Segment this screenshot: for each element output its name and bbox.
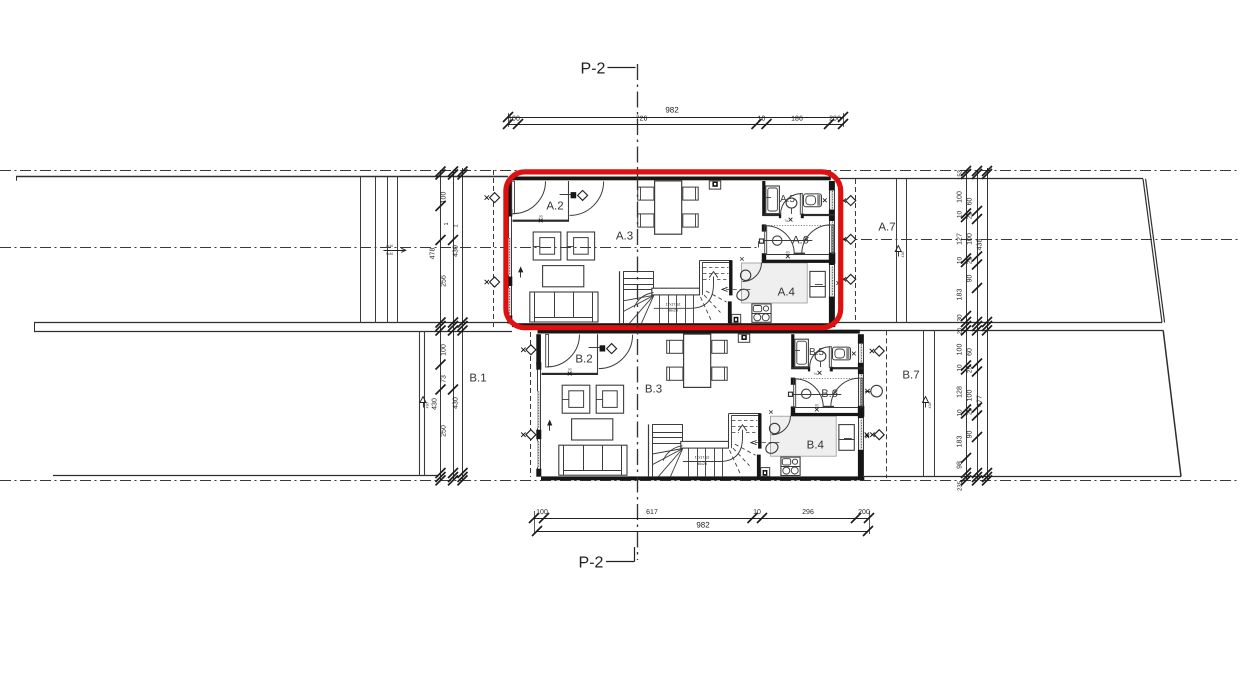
svg-text:B.5: B.5 [809, 347, 824, 358]
svg-text:5x30: 5x30 [386, 252, 393, 256]
svg-text:982: 982 [665, 106, 679, 115]
svg-text:430: 430 [432, 398, 439, 410]
svg-text:70: 70 [813, 372, 817, 376]
svg-text:A.4: A.4 [778, 286, 796, 298]
svg-text:17x17.52: 17x17.52 [666, 302, 681, 306]
svg-text:A.2: A.2 [546, 201, 563, 213]
svg-text:100: 100 [957, 344, 964, 356]
svg-text:100: 100 [441, 344, 448, 356]
svg-text:B.4: B.4 [807, 440, 825, 452]
svg-text:90: 90 [568, 368, 572, 372]
svg-text:100: 100 [967, 233, 974, 245]
svg-text:73: 73 [441, 375, 448, 383]
svg-text:B.1: B.1 [469, 373, 486, 385]
svg-text:70: 70 [784, 219, 788, 223]
svg-text:100: 100 [441, 192, 448, 204]
svg-text:10: 10 [758, 116, 766, 123]
svg-text:617: 617 [646, 509, 658, 516]
svg-text:477: 477 [977, 395, 984, 407]
svg-text:90: 90 [967, 275, 974, 283]
svg-text:25: 25 [967, 212, 974, 220]
svg-text:10: 10 [957, 211, 964, 219]
svg-text:4x16: 4x16 [386, 244, 393, 248]
svg-text:128: 128 [957, 386, 964, 398]
svg-text:183: 183 [957, 436, 964, 448]
svg-text:127: 127 [957, 233, 964, 245]
svg-text:478: 478 [430, 248, 437, 260]
svg-text:430: 430 [453, 397, 460, 409]
svg-text:153: 153 [957, 169, 964, 180]
svg-text:30: 30 [957, 314, 964, 322]
svg-text:98: 98 [957, 461, 964, 469]
svg-text:25: 25 [967, 408, 974, 416]
svg-text:A.6: A.6 [792, 235, 809, 247]
svg-text:20: 20 [957, 327, 964, 334]
svg-text:90: 90 [967, 431, 974, 439]
svg-text:438: 438 [977, 239, 984, 251]
svg-text:A.3: A.3 [616, 231, 633, 243]
svg-text:438: 438 [901, 252, 905, 258]
svg-text:200: 200 [858, 509, 870, 516]
svg-text:17x17.52: 17x17.52 [695, 456, 710, 460]
svg-text:256: 256 [441, 275, 448, 287]
svg-text:60: 60 [967, 348, 974, 356]
svg-text:100: 100 [957, 191, 964, 203]
svg-text:25: 25 [967, 257, 974, 265]
svg-text:235: 235 [957, 480, 964, 491]
svg-text:982: 982 [696, 521, 710, 530]
svg-text:B.7: B.7 [902, 370, 919, 382]
svg-text:10: 10 [957, 409, 964, 417]
svg-text:296: 296 [802, 509, 814, 516]
svg-text:P-2: P-2 [579, 555, 604, 572]
svg-text:B.3: B.3 [645, 384, 662, 396]
svg-text:100: 100 [508, 116, 520, 123]
svg-text:80: 80 [786, 250, 790, 254]
svg-text:430: 430 [453, 245, 460, 257]
svg-text:80: 80 [815, 404, 819, 408]
svg-text:250: 250 [441, 425, 448, 437]
svg-text:100: 100 [967, 390, 974, 402]
svg-text:726: 726 [636, 116, 648, 123]
svg-text:186: 186 [791, 116, 803, 123]
svg-text:96x28: 96x28 [697, 462, 707, 466]
svg-text:10: 10 [753, 509, 761, 516]
svg-text:438: 438 [928, 403, 932, 409]
svg-text:A.5: A.5 [780, 194, 795, 205]
svg-text:10: 10 [957, 364, 964, 372]
svg-text:96x28: 96x28 [668, 309, 678, 313]
svg-text:P-2: P-2 [581, 61, 606, 78]
svg-text:183: 183 [957, 289, 964, 301]
svg-text:10: 10 [957, 257, 964, 265]
svg-text:90: 90 [539, 214, 543, 218]
svg-text:60: 60 [967, 198, 974, 206]
svg-text:100: 100 [536, 509, 548, 516]
svg-text:430: 430 [426, 403, 430, 409]
svg-text:A.7: A.7 [878, 222, 895, 234]
svg-text:B.2: B.2 [575, 354, 592, 366]
svg-text:25: 25 [967, 366, 974, 374]
svg-text:200: 200 [829, 116, 841, 123]
svg-text:B.6: B.6 [821, 388, 838, 400]
